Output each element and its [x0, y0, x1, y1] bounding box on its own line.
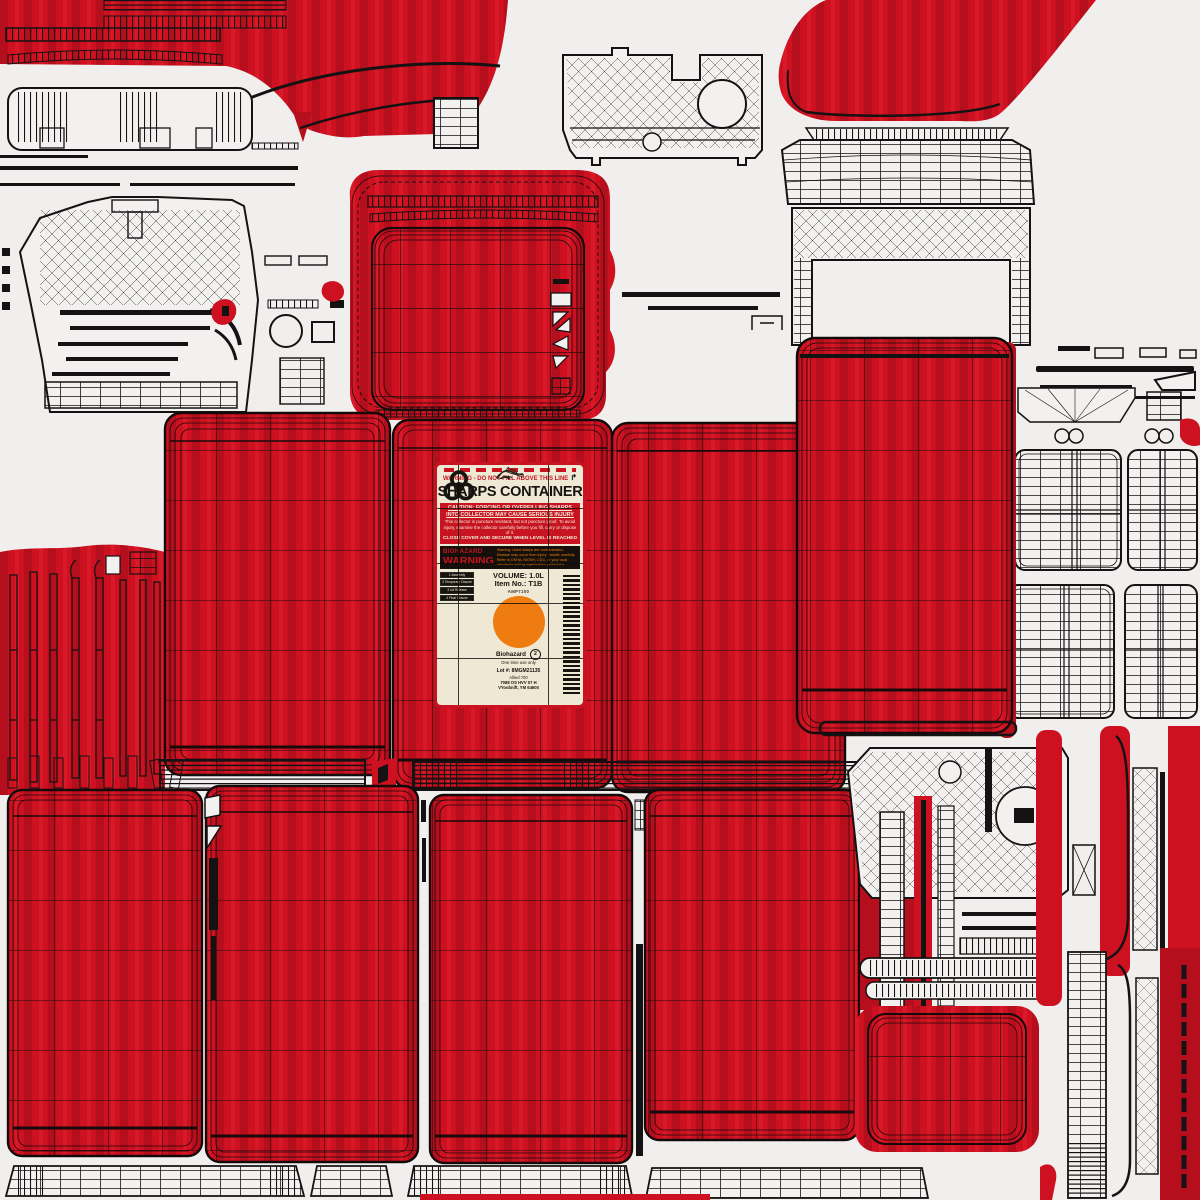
step-caption: 3 Lid Release — [441, 588, 473, 593]
uv-shell-lid-underside — [563, 48, 762, 165]
uv-shell-rim-square-4 — [1125, 585, 1197, 718]
uv-shell-body-panel-6 — [206, 786, 418, 1162]
biohazard-warning-box: BIOHAZARD WARNING Warning: Used sharps a… — [440, 546, 580, 568]
atlas-canvas — [0, 0, 1200, 1200]
step-caption: 4 Final Closure — [441, 596, 473, 601]
instruction-steps: 1 Assembly 2 Temporary Closure 3 Lid Rel… — [440, 572, 474, 695]
uv-shell-rim-outline — [8, 88, 252, 150]
uv-shell-lid-skirt — [782, 128, 1034, 204]
barcode — [563, 575, 580, 695]
uv-mesh-line — [437, 508, 583, 509]
uv-shell-rim-square-3 — [1008, 585, 1114, 718]
uv-shell-body-panel-7 — [430, 795, 632, 1163]
uv-shell-body-panel-8 — [645, 790, 859, 1140]
uv-shell-body-panel-5 — [8, 790, 202, 1156]
instruction-step: 1 Assembly — [440, 572, 474, 579]
instruction-step: 2 Temporary Closure — [440, 579, 474, 586]
hazard-note: Warning: Used sharps are contaminated. D… — [497, 548, 577, 566]
biohazard-label-text: Biohazard — [496, 651, 526, 658]
uv-mesh-line — [437, 603, 583, 604]
instruction-step: 4 Final Closure — [440, 595, 474, 602]
uv-texture-atlas: WARNING - DO NOT FILL ABOVE THIS LINE↱ S… — [0, 0, 1200, 1200]
caution-box: CAUTION: FORCING OR OVERFILLING SHARPS I… — [440, 503, 580, 544]
uv-shell-lid-top — [350, 170, 615, 420]
instruction-step: 3 Lid Release — [440, 587, 474, 594]
uv-shell-body-panel-1 — [165, 413, 390, 775]
caution-body: This collector is puncture resistant, bu… — [443, 519, 577, 535]
warning-word: WARNING — [443, 556, 494, 567]
step-caption: 2 Temporary Closure — [441, 580, 473, 585]
sharps-container-label: WARNING - DO NOT FILL ABOVE THIS LINE↱ S… — [434, 462, 586, 708]
uv-bottom-strip-bars — [6, 1166, 928, 1200]
uv-shell-body-panel-4 — [797, 338, 1012, 733]
uv-shell-rim-square-1 — [1015, 450, 1121, 570]
uv-small-grid-box-top — [434, 98, 478, 148]
uv-mesh-line — [437, 658, 583, 659]
uv-shell-side-strips — [0, 545, 165, 795]
uv-mesh-line — [548, 465, 549, 705]
step-caption: 1 Assembly — [441, 573, 473, 578]
uv-shell-lid-bottom-square — [855, 1006, 1039, 1152]
uv-mesh-line — [437, 563, 583, 564]
caution-heading: INTO COLLECTOR MAY CAUSE SERIOUS INJURY — [443, 512, 577, 519]
caution-footer: CLOSE COVER AND SECURE WHEN LEVEL IS REA… — [443, 536, 577, 542]
uv-shell-rim-square-2 — [1128, 450, 1197, 570]
uv-mesh-line — [458, 465, 459, 705]
